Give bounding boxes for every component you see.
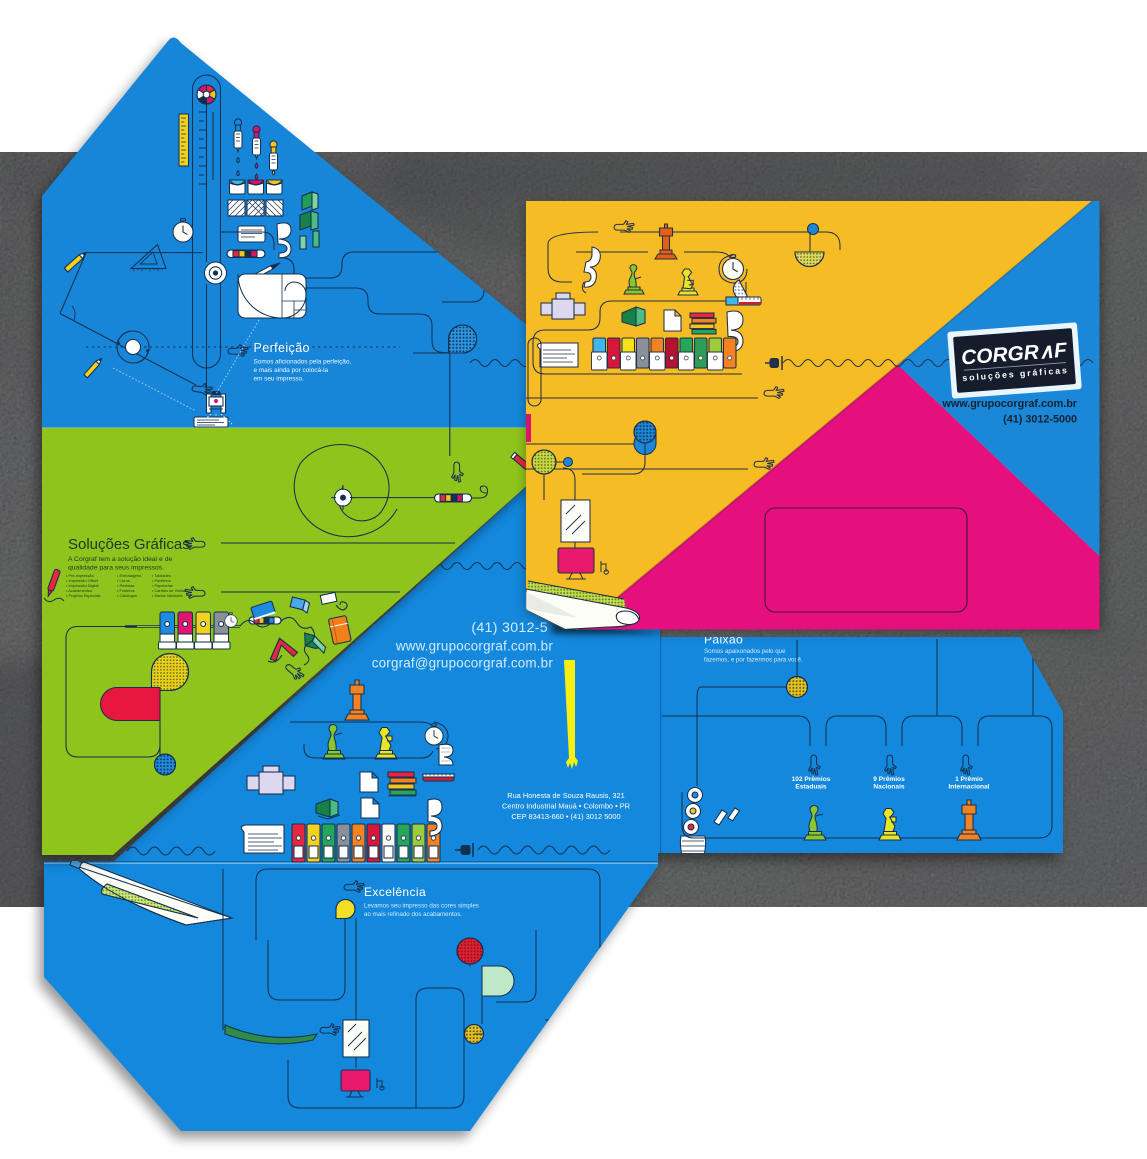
svg-text:em seu impresso.: em seu impresso. [254, 376, 305, 383]
svg-text:CEP 83413-660 • (41) 3012 5000: CEP 83413-660 • (41) 3012 5000 [511, 812, 620, 821]
svg-text:102 Prêmios: 102 Prêmios [792, 776, 831, 783]
svg-text:Nacionais: Nacionais [873, 784, 904, 791]
svg-text:fazemos, e por fazermos para v: fazemos, e por fazermos para você. [704, 657, 803, 664]
svg-text:9 Prêmios: 9 Prêmios [873, 776, 905, 783]
svg-text:Rua Honesta de Souza Rausis, 3: Rua Honesta de Souza Rausis, 321 [507, 791, 625, 800]
svg-text:1 Prêmio: 1 Prêmio [955, 776, 983, 783]
svg-text:www.grupocorgraf.com.br: www.grupocorgraf.com.br [395, 639, 554, 654]
svg-text:Somos aficionados pela perfeiç: Somos aficionados pela perfeição, [254, 359, 352, 366]
svg-text:• Dados Variáveis: • Dados Variáveis [152, 593, 183, 598]
svg-text:• Catálogos: • Catálogos [117, 593, 137, 598]
svg-text:qualidade para seus impressos.: qualidade para seus impressos. [68, 565, 164, 572]
svg-text:Soluções Gráficas: Soluções Gráficas [68, 536, 190, 553]
svg-text:Excelência: Excelência [364, 885, 426, 899]
svg-text:A Corgraf tem a solução ideal: A Corgraf tem a solução ideal e de [68, 556, 172, 563]
svg-text:Internacional: Internacional [948, 784, 989, 791]
svg-text:corgraf@grupocorgraf.com.br: corgraf@grupocorgraf.com.br [372, 656, 554, 671]
svg-text:Somos apaixonados pelo que: Somos apaixonados pelo que [704, 648, 786, 655]
svg-text:Perfeição: Perfeição [254, 341, 310, 355]
svg-text:ao mais refinado dos acabament: ao mais refinado dos acabamentos. [364, 911, 462, 918]
svg-text:www.grupocorgraf.com.br: www.grupocorgraf.com.br [941, 398, 1077, 410]
svg-text:Centro Industrial Mauá • Colom: Centro Industrial Mauá • Colombo • PR [502, 802, 630, 811]
svg-text:(41) 3012-5000: (41) 3012-5000 [1003, 414, 1077, 426]
svg-text:(41) 3012-5: (41) 3012-5 [471, 620, 548, 636]
svg-text:Levamos seu impresso das cores: Levamos seu impresso das cores simples [364, 903, 479, 910]
svg-text:e mais ainda por colocá-la: e mais ainda por colocá-la [254, 367, 329, 374]
svg-text:• Projetos Especiais: • Projetos Especiais [66, 593, 101, 598]
svg-text:Estaduais: Estaduais [795, 784, 826, 791]
